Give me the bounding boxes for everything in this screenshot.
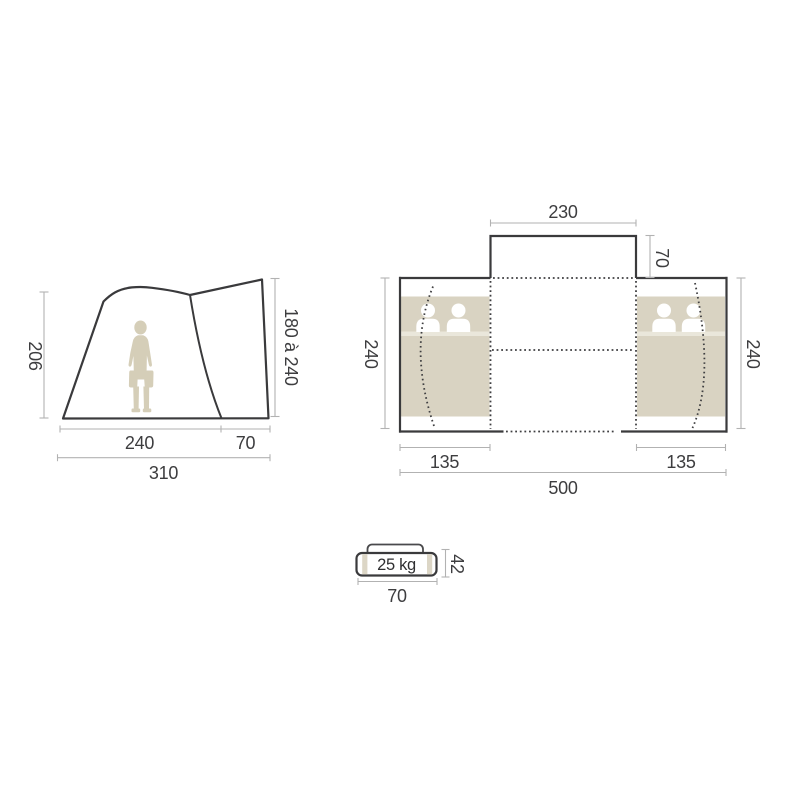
canopy-width-label: 230 <box>548 203 577 221</box>
diagram-graphics <box>0 0 800 800</box>
bag-width-label: 70 <box>387 587 406 605</box>
side-height-right-dimension <box>271 279 280 417</box>
side-height-right-label: 180 à 240 <box>282 308 300 385</box>
tent-dimension-diagram: 206 180 à 240 240 70 310 230 70 240 240 … <box>0 0 800 800</box>
mat-highlight-right <box>637 332 725 337</box>
bedroom-right-width-label: 135 <box>666 453 695 471</box>
bag-strap-left <box>362 554 367 574</box>
bag-height-label: 42 <box>448 554 466 573</box>
bedroom-area-left <box>401 297 490 417</box>
canopy-walls <box>491 236 637 278</box>
bedroom-area-right <box>637 297 725 417</box>
side-width-main-label: 240 <box>125 434 154 452</box>
bag-weight-label: 25 kg <box>377 556 416 573</box>
side-height-left-label: 206 <box>26 341 44 370</box>
side-width-total-dimension <box>58 454 271 461</box>
floor-plan <box>381 220 746 477</box>
plan-depth-left-label: 240 <box>362 339 380 368</box>
side-width-porch-label: 70 <box>236 434 255 452</box>
plan-depth-right-label: 240 <box>744 339 762 368</box>
bag-width-dimension <box>358 578 437 585</box>
canopy-depth-label: 70 <box>653 248 671 267</box>
inner-partition-dotted-lines <box>491 278 637 432</box>
plan-width-total-label: 500 <box>548 479 577 497</box>
side-width-segments-dimension <box>60 426 270 433</box>
bedroom-left-width-dimension <box>400 444 490 451</box>
bedroom-left-width-label: 135 <box>430 453 459 471</box>
bedroom-right-width-dimension <box>637 444 726 451</box>
plan-depth-left-dimension <box>381 278 390 429</box>
mat-highlight-left <box>401 332 490 337</box>
bag-strap-right <box>427 554 432 574</box>
side-width-total-label: 310 <box>149 464 178 482</box>
tent-outline <box>63 280 269 419</box>
